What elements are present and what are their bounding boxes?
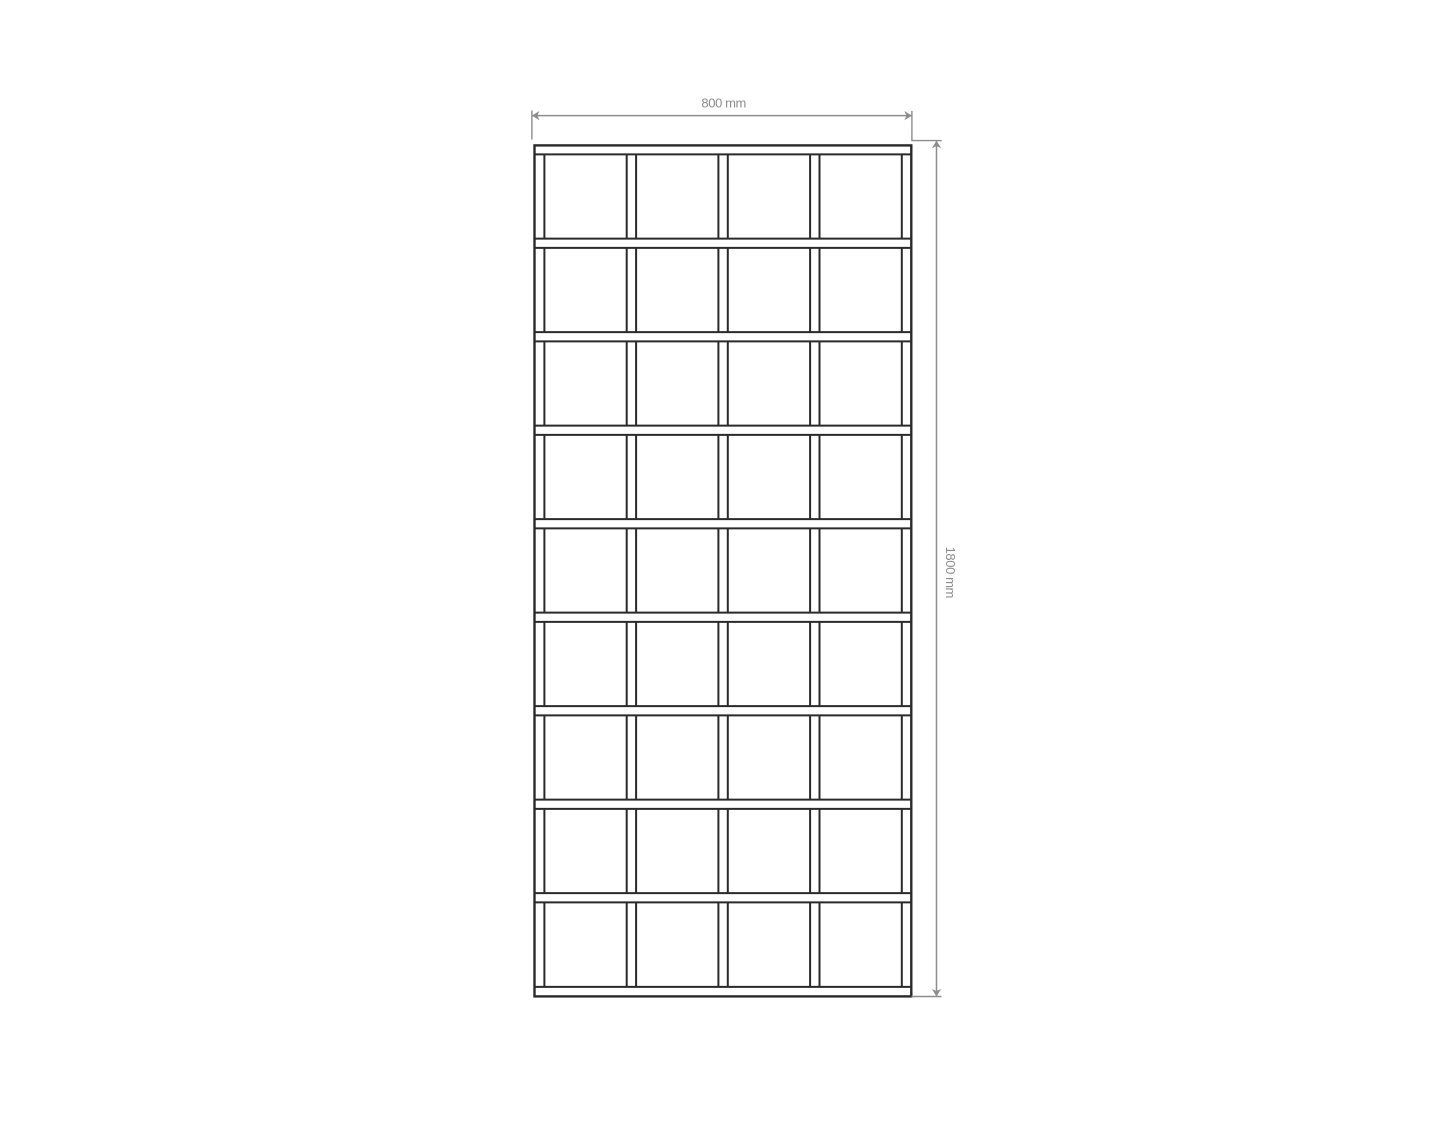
svg-text:1800 mm: 1800 mm bbox=[943, 547, 958, 598]
svg-text:800 mm: 800 mm bbox=[701, 96, 746, 111]
